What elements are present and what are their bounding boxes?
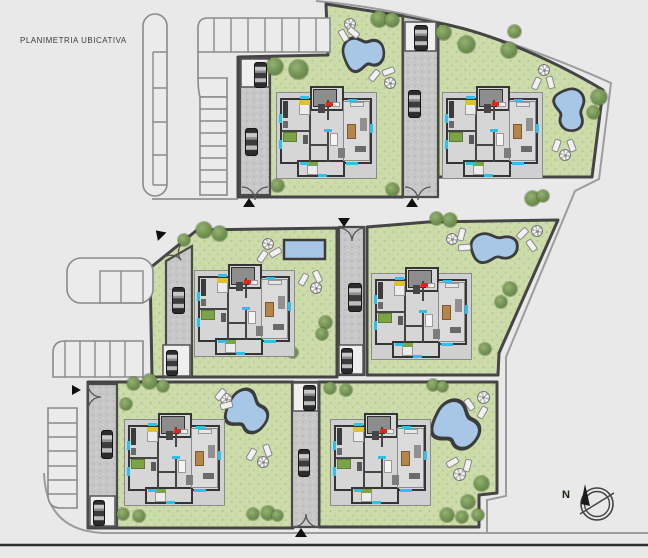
window-marker	[333, 467, 336, 476]
tv-bench	[409, 473, 420, 479]
bathtub	[425, 314, 433, 327]
interior-wall	[404, 325, 424, 327]
window-marker	[196, 426, 205, 429]
dining-table	[265, 302, 274, 317]
window-marker	[490, 129, 498, 132]
bathtub	[330, 133, 338, 146]
dining-table	[347, 124, 356, 139]
plan-title: PLANIMETRIA UBICATIVA	[20, 36, 127, 45]
window-marker	[346, 162, 358, 165]
armchair	[186, 475, 193, 485]
tv-bench	[355, 146, 366, 152]
parasol-icon	[531, 225, 543, 237]
window-marker	[413, 355, 422, 358]
parking-stub-top	[198, 52, 227, 97]
bed-green	[201, 310, 215, 320]
tree	[461, 495, 475, 509]
entrance-arrow	[338, 218, 350, 227]
car	[101, 430, 113, 459]
dining-table	[401, 451, 410, 466]
window-marker	[348, 99, 357, 102]
window-marker	[484, 174, 493, 177]
window-marker	[354, 423, 363, 426]
window-marker	[400, 489, 412, 492]
kitchen-counter	[445, 283, 459, 288]
kitchen-counter	[198, 429, 212, 434]
window-marker	[279, 114, 282, 123]
house-villa-1	[280, 86, 380, 180]
bed-green	[449, 132, 463, 142]
entry-door-marker	[380, 429, 387, 433]
entrance-arrow	[406, 198, 418, 207]
entry-door-marker	[492, 102, 499, 106]
kitchen-counter	[404, 429, 418, 434]
window-marker	[236, 352, 245, 355]
tree	[324, 382, 336, 394]
window-marker	[424, 451, 427, 460]
interior-wall	[381, 457, 383, 489]
window-marker	[197, 318, 200, 327]
bed-pillow-yellow	[465, 100, 476, 105]
cabinet	[484, 104, 491, 113]
entry-door-marker	[326, 102, 333, 106]
parking-row-left-strip	[143, 14, 167, 196]
interior-wall	[327, 130, 329, 162]
tree	[289, 60, 308, 79]
window-marker	[466, 96, 475, 99]
tree	[474, 476, 489, 491]
parasol-icon	[477, 391, 490, 404]
tree	[508, 25, 521, 38]
window-marker	[445, 114, 448, 123]
parking-row-middle	[53, 341, 143, 377]
dining-table	[513, 124, 522, 139]
tree	[479, 343, 491, 355]
tree	[503, 282, 517, 296]
window-marker	[465, 305, 468, 314]
window-marker	[148, 489, 157, 492]
car	[93, 500, 105, 526]
window-marker	[218, 274, 227, 277]
window-marker	[395, 343, 404, 346]
tree	[495, 296, 507, 308]
kitchen-counter	[516, 102, 530, 107]
tv-bench	[203, 473, 214, 479]
interior-wall	[422, 311, 424, 343]
bed-pillow-yellow	[394, 281, 405, 286]
tree	[430, 212, 443, 225]
cabinet	[166, 431, 173, 440]
window-marker	[395, 277, 404, 280]
bed-green	[283, 132, 297, 142]
tv-bench	[521, 146, 532, 152]
shelf	[201, 299, 206, 306]
wardrobe	[131, 428, 136, 445]
interior-wall	[175, 457, 177, 489]
bed-pillow-yellow	[353, 427, 364, 432]
parking-row-top	[198, 18, 330, 52]
parking-loop-middle	[67, 258, 153, 303]
wardrobe	[337, 428, 342, 445]
car	[341, 348, 353, 374]
shelf	[283, 121, 288, 128]
bathtub	[178, 460, 186, 473]
site-plan: PLANIMETRIA UBICATIVA N	[0, 0, 648, 558]
kitchen-counter	[268, 280, 282, 285]
house-villa-2	[446, 86, 546, 180]
sofa	[455, 299, 462, 312]
cabinet	[236, 282, 243, 291]
dining-table	[442, 305, 451, 320]
dresser	[221, 313, 226, 322]
shelf	[337, 448, 342, 455]
compass-rose-icon	[572, 478, 636, 530]
window-marker	[374, 295, 377, 304]
entry-door-marker	[421, 283, 428, 287]
parasol-icon	[310, 282, 322, 294]
bed-pillow-yellow	[147, 427, 158, 432]
window-marker	[466, 162, 475, 165]
tree	[196, 222, 212, 238]
window-marker	[318, 174, 327, 177]
tree	[266, 58, 283, 75]
tree	[537, 190, 549, 202]
window-marker	[443, 280, 452, 283]
tree	[117, 508, 129, 520]
armchair	[338, 148, 345, 158]
tree	[272, 510, 283, 521]
car	[254, 62, 267, 88]
window-marker	[218, 340, 227, 343]
window-marker	[512, 162, 524, 165]
bathtub	[248, 311, 256, 324]
parasol-icon	[257, 456, 269, 468]
window-marker	[378, 456, 386, 459]
tree	[472, 509, 484, 521]
armchair	[433, 329, 440, 339]
car	[245, 128, 258, 156]
car	[303, 385, 316, 411]
window-marker	[372, 501, 381, 504]
tv-bench	[273, 324, 284, 330]
dresser	[303, 135, 308, 144]
window-marker	[218, 451, 221, 460]
window-marker	[324, 129, 332, 132]
sofa	[278, 296, 285, 309]
sun-lounger	[458, 243, 472, 251]
car	[298, 449, 310, 477]
interior-wall	[309, 144, 329, 146]
window-marker	[370, 124, 373, 133]
tree	[386, 183, 399, 196]
car	[172, 287, 185, 314]
window-marker	[242, 307, 250, 310]
wardrobe	[201, 279, 206, 296]
parasol-icon	[262, 238, 274, 250]
tree	[458, 36, 475, 53]
interior-wall	[475, 144, 495, 146]
dining-table	[195, 451, 204, 466]
window-marker	[333, 441, 336, 450]
house-villa-5	[128, 413, 228, 507]
armchair	[256, 326, 263, 336]
interior-wall	[363, 471, 383, 473]
bathtub	[384, 460, 392, 473]
compass-north-label: N	[562, 489, 570, 501]
window-marker	[172, 456, 180, 459]
entry-door-marker	[244, 280, 251, 284]
cabinet	[318, 104, 325, 113]
tree	[443, 213, 457, 227]
window-marker	[288, 302, 291, 311]
window-marker	[445, 140, 448, 149]
pool-villa-3	[284, 240, 325, 259]
tree	[340, 384, 352, 396]
window-marker	[264, 340, 276, 343]
bed-green	[131, 459, 145, 469]
window-marker	[441, 343, 453, 346]
tree	[436, 25, 451, 40]
kitchen-counter	[350, 102, 364, 107]
sofa	[360, 118, 367, 131]
dresser	[151, 462, 156, 471]
tree	[587, 106, 600, 119]
window-marker	[402, 426, 411, 429]
bed-green	[337, 459, 351, 469]
entry-door-marker	[174, 429, 181, 433]
tree	[316, 328, 328, 340]
house-villa-4	[375, 267, 475, 361]
wardrobe	[378, 282, 383, 299]
window-marker	[166, 501, 175, 504]
north-compass: N	[558, 478, 634, 532]
dresser	[469, 135, 474, 144]
window-marker	[194, 489, 206, 492]
car	[414, 25, 428, 51]
window-marker	[300, 162, 309, 165]
entrance-arrow	[243, 198, 255, 207]
sofa	[208, 445, 215, 458]
sofa	[526, 118, 533, 131]
parasol-icon	[538, 64, 550, 76]
bed-pillow-yellow	[217, 278, 228, 283]
entrance-arrow	[72, 385, 81, 395]
tree	[247, 508, 259, 520]
window-marker	[514, 99, 523, 102]
window-marker	[354, 489, 363, 492]
house-villa-6	[334, 413, 434, 507]
tree	[271, 179, 284, 192]
armchair	[392, 475, 399, 485]
tree	[133, 510, 145, 522]
car	[348, 283, 362, 312]
tree	[437, 381, 448, 392]
window-marker	[266, 277, 275, 280]
interior-wall	[493, 130, 495, 162]
sofa	[414, 445, 421, 458]
window-marker	[148, 423, 157, 426]
bed-pillow-yellow	[299, 100, 310, 105]
tree	[142, 374, 157, 389]
cabinet	[372, 431, 379, 440]
parasol-icon	[384, 77, 396, 89]
tree	[120, 398, 132, 410]
tree	[157, 380, 169, 392]
tree	[501, 42, 517, 58]
window-marker	[127, 441, 130, 450]
car	[166, 350, 178, 376]
window-marker	[197, 292, 200, 301]
dresser	[357, 462, 362, 471]
wardrobe	[449, 101, 454, 118]
dresser	[398, 316, 403, 325]
tree	[212, 226, 227, 241]
window-marker	[536, 124, 539, 133]
tree	[591, 89, 607, 105]
interior-wall	[245, 308, 247, 340]
house-villa-3	[198, 264, 298, 358]
entrance-arrow	[295, 528, 307, 537]
tree	[178, 234, 190, 246]
shelf	[449, 121, 454, 128]
interior-wall	[157, 471, 177, 473]
tv-bench	[450, 327, 461, 333]
window-marker	[419, 310, 427, 313]
tree	[127, 377, 140, 390]
tree	[456, 511, 468, 523]
window-marker	[374, 321, 377, 330]
bed-green	[378, 313, 392, 323]
tree	[385, 13, 399, 27]
bathtub	[496, 133, 504, 146]
tree	[440, 508, 454, 522]
wardrobe	[283, 101, 288, 118]
cabinet	[413, 285, 420, 294]
interior-wall	[227, 322, 247, 324]
shelf	[378, 302, 383, 309]
window-marker	[127, 467, 130, 476]
armchair	[504, 148, 511, 158]
car	[408, 90, 421, 118]
window-marker	[279, 140, 282, 149]
shelf	[131, 448, 136, 455]
window-marker	[300, 96, 309, 99]
